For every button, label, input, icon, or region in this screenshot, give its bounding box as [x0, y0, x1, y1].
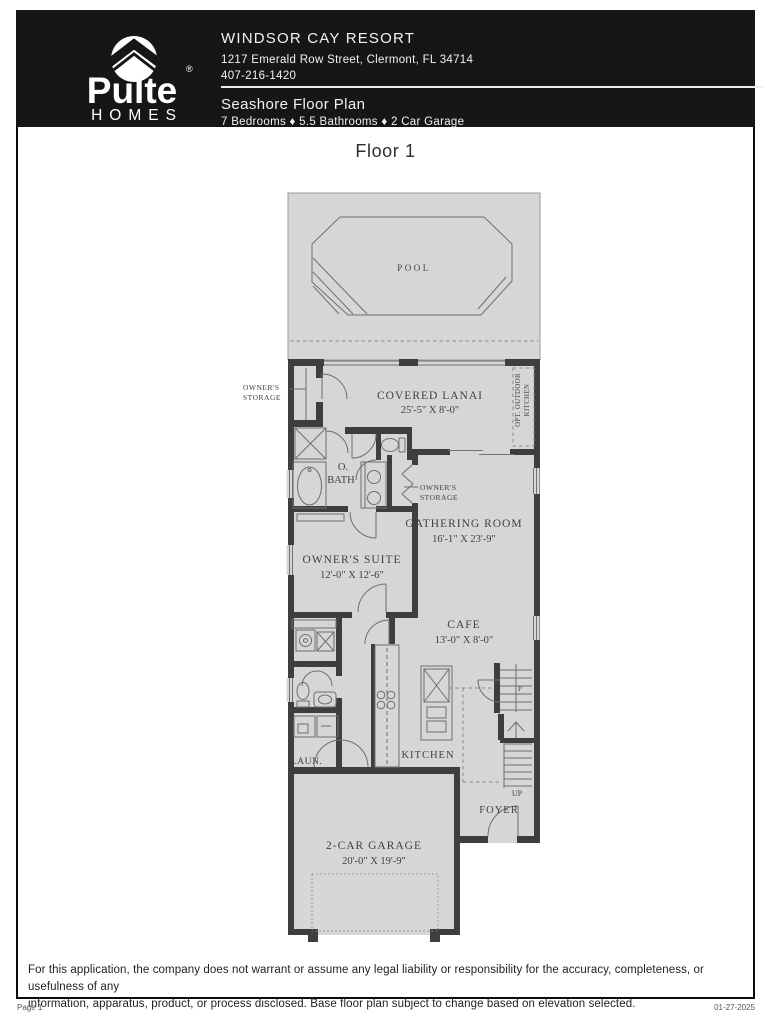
room-label-owners-suite: OWNER'S SUITE — [302, 554, 401, 566]
room-dims-covered-lanai: 25'-5" X 8'-0" — [401, 405, 459, 416]
room-dims-gathering: 16'-1" X 23'-9" — [432, 534, 496, 545]
room-label-cafe: CAFE — [447, 619, 480, 631]
room-label-owners-storage-left-1: OWNER'S — [243, 383, 280, 392]
room-label-pool: POOL — [397, 263, 431, 273]
room-label-owners-storage-inner-2: STORAGE — [420, 493, 458, 502]
room-dims-owners-suite: 12'-0" X 12'-6" — [320, 570, 384, 581]
room-dims-garage: 20'-0" X 19'-9" — [342, 856, 406, 867]
header-divider — [221, 86, 763, 88]
room-dims-cafe: 13'-0" X 8'-0" — [435, 635, 493, 646]
room-label-garage: 2-CAR GARAGE — [326, 840, 422, 852]
community-phone: 407-216-1420 — [221, 70, 296, 82]
room-label-owners-storage-inner-1: OWNER'S — [420, 483, 457, 492]
logo-brand-text: Pulte — [87, 70, 177, 111]
disclaimer-text: For this application, the company does n… — [28, 962, 744, 1013]
stair-label-pantry: P — [518, 685, 522, 693]
pulte-homes-logo: Pulte ® HOMES — [58, 24, 208, 124]
room-label-gathering: GATHERING ROOM — [405, 518, 522, 530]
stair-label-up: UP — [512, 789, 523, 798]
plan-specs: 7 Bedrooms ♦ 5.5 Bathrooms ♦ 2 Car Garag… — [221, 116, 464, 128]
room-label-laundry: LAUN. — [291, 757, 322, 767]
page-number: Page 1 — [17, 1003, 42, 1012]
room-label-kitchen: KITCHEN — [401, 750, 454, 761]
community-name: WINDSOR CAY RESORT — [221, 30, 415, 47]
room-label-opt-outdoor-kitchen-2: KITCHEN — [524, 384, 531, 417]
header-bar: Pulte ® HOMES WINDSOR CAY RESORT 1217 Em… — [16, 10, 755, 127]
logo-registered-mark: ® — [186, 64, 193, 74]
logo-sub-text: HOMES — [91, 107, 183, 124]
room-label-opt-outdoor-kitchen-1: OPT. OUTDOOR — [515, 373, 522, 427]
floor-plan-drawing: POOL OWNER'S STORAGE COVERED LANAI 25'-5… — [240, 185, 555, 960]
disclaimer-line-1: For this application, the company does n… — [28, 962, 744, 996]
disclaimer-line-2: information, apparatus, product, or proc… — [28, 996, 744, 1013]
room-label-owners-bath-2: BATH — [327, 475, 355, 486]
room-label-covered-lanai: COVERED LANAI — [377, 390, 483, 402]
room-label-owners-storage-left-2: STORAGE — [243, 393, 281, 402]
room-label-foyer: FOYER — [479, 805, 518, 816]
room-label-owners-bath-1: O. — [338, 462, 348, 473]
community-address: 1217 Emerald Row Street, Clermont, FL 34… — [221, 54, 473, 66]
floor-title: Floor 1 — [16, 141, 755, 162]
print-date: 01-27-2025 — [714, 1003, 755, 1012]
plan-name: Seashore Floor Plan — [221, 96, 365, 113]
